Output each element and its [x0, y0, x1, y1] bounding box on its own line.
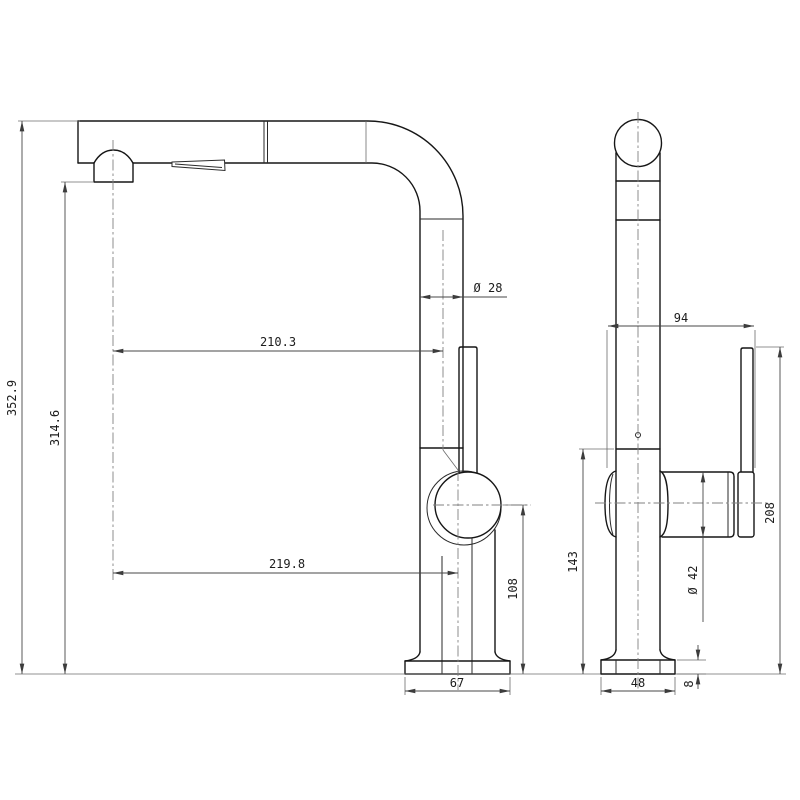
dim-spout-outlet-height: 314.6	[48, 410, 62, 446]
centerlines-front	[595, 112, 768, 690]
centerlines-side	[113, 140, 531, 690]
base-flare-side	[405, 652, 510, 661]
handle-lever-rod-side	[459, 347, 477, 473]
spray-head-dome	[94, 150, 133, 163]
spray-head-body	[94, 163, 133, 182]
hub-collar-right	[660, 471, 668, 537]
front-view: 94 208 143 Ø 42 48 8	[566, 112, 784, 695]
dim-lever-top-height: 208	[763, 502, 777, 524]
handle-lever-rod-front	[741, 348, 753, 472]
spout-inner-profile	[78, 163, 420, 652]
dim-overall-height: 352.9	[5, 380, 19, 416]
handle-end-cap	[738, 472, 754, 537]
side-view: 352.9 314.6 210.3 219.8 Ø 28 108 67	[5, 121, 531, 695]
base-plate-side	[405, 661, 510, 674]
dim-handle-span: 94	[674, 311, 688, 325]
dim-body-joint-height: 143	[566, 551, 580, 573]
technical-drawing-canvas: 352.9 314.6 210.3 219.8 Ø 28 108 67	[0, 0, 800, 800]
centerline-connector	[443, 450, 458, 470]
dim-base-width: 48	[631, 676, 645, 690]
handle-span-ext-lines	[607, 330, 755, 468]
dim-base-plate-thickness: 8	[682, 680, 696, 687]
hub-collar-left	[605, 471, 616, 537]
dim-handle-center-height: 108	[506, 578, 520, 600]
dimensions-side: 352.9 314.6 210.3 219.8 Ø 28 108 67	[5, 121, 527, 695]
handle-cylinder	[662, 472, 734, 537]
spout-outer-profile	[78, 121, 463, 480]
dim-tube-diameter: Ø 28	[474, 281, 503, 295]
dim-base-length: 67	[450, 676, 464, 690]
faucet-front-outline	[601, 120, 754, 675]
plate-thickness-ext-lines	[677, 660, 706, 674]
dim-spout-reach-lower: 219.8	[269, 557, 305, 571]
lower-housing-inner-lines	[442, 538, 472, 674]
dim-handle-diameter: Ø 42	[686, 566, 700, 595]
drawing-sheet: 352.9 314.6 210.3 219.8 Ø 28 108 67	[0, 0, 800, 800]
faucet-side-outline	[78, 121, 510, 674]
hub-collar-left-inner	[610, 474, 614, 535]
dim-spout-reach-upper: 210.3	[260, 335, 296, 349]
pullout-seam-lines	[264, 121, 268, 163]
